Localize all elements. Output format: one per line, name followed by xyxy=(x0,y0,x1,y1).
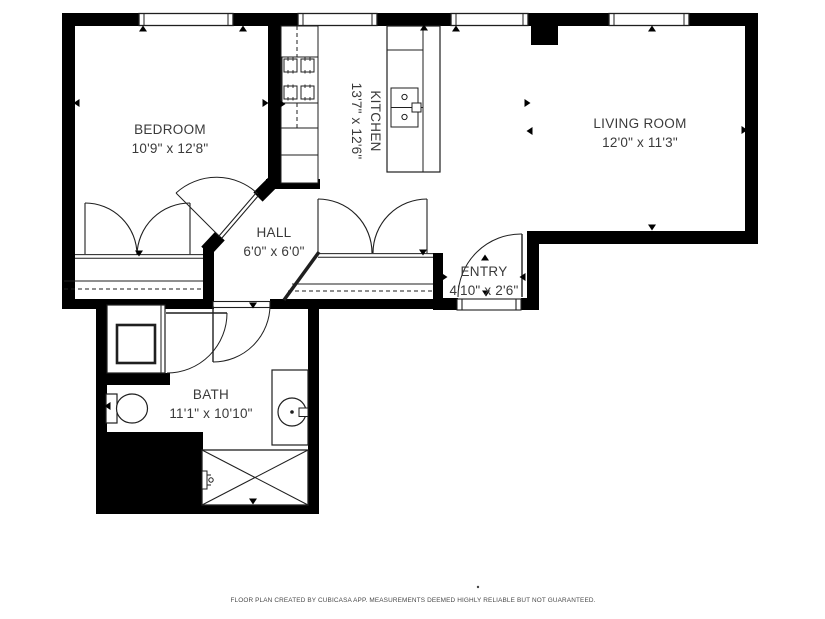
bedroom-closet xyxy=(64,203,203,289)
kitchen-counter xyxy=(281,26,318,183)
room-dimensions: 6'0" x 6'0" xyxy=(243,242,304,261)
room-dimensions: 4'10" x 2'6" xyxy=(450,281,519,300)
entry-threshold xyxy=(457,299,521,310)
hall-diagonal-wall xyxy=(258,180,275,197)
room-name: LIVING ROOM xyxy=(593,114,686,133)
disclaimer-text: FLOOR PLAN CREATED BY CUBICASA APP. MEAS… xyxy=(230,597,595,604)
hall-bottom-wall xyxy=(270,299,443,309)
bedroom-label: BEDROOM 10'9" x 12'8" xyxy=(132,120,209,158)
room-name: BEDROOM xyxy=(132,120,209,139)
left-exterior-wall xyxy=(62,13,75,307)
kitchen-living-pillar xyxy=(531,26,558,45)
kitchen-label: KITCHEN 13'7" x 12'6" xyxy=(347,83,385,160)
entry-label: ENTRY 4'10" x 2'6" xyxy=(450,262,519,300)
room-dimensions: 11'1" x 10'10" xyxy=(169,404,252,423)
bath-left-wall xyxy=(96,302,107,432)
bath-door-threshold xyxy=(213,302,270,308)
room-name: BATH xyxy=(169,385,252,404)
floor-plan: BEDROOM 10'9" x 12'8" KITCHEN 13'7" x 12… xyxy=(0,0,825,619)
right-exterior-wall xyxy=(745,13,758,244)
footer-dot xyxy=(477,586,479,588)
vanity-sink-icon xyxy=(272,370,308,445)
hall-label: HALL 6'0" x 6'0" xyxy=(243,223,304,261)
bath-label: BATH 11'1" x 10'10" xyxy=(169,385,252,423)
kitchen-island xyxy=(387,26,440,172)
floor-plan-graphics xyxy=(0,0,825,619)
shower-door xyxy=(166,313,227,373)
bath-right-wall xyxy=(308,303,319,514)
living-room-label: LIVING ROOM 12'0" x 11'3" xyxy=(593,114,686,152)
kitchen-window xyxy=(298,14,377,26)
room-dimensions: 13'7" x 12'6" xyxy=(347,83,366,160)
hall-closet xyxy=(284,199,433,300)
toilet-icon xyxy=(106,394,148,423)
bathtub-icon xyxy=(202,450,308,505)
closet-double-doors xyxy=(318,199,427,253)
shower-icon xyxy=(107,305,165,373)
kitchen-sink-icon xyxy=(391,88,423,127)
living-room-window xyxy=(609,14,689,26)
room-name: KITCHEN xyxy=(366,83,385,160)
living-room-bottom-wall xyxy=(527,231,758,244)
room-name: ENTRY xyxy=(450,262,519,281)
top-wall-segment xyxy=(528,13,609,26)
top-wall-segment xyxy=(377,13,451,26)
closet-double-doors xyxy=(85,203,190,255)
bedroom-closet-side-wall xyxy=(203,247,214,309)
bedroom-window xyxy=(139,14,233,26)
room-name: HALL xyxy=(243,223,304,242)
living-room-window xyxy=(451,14,528,26)
stove-icon xyxy=(282,57,318,103)
room-dimensions: 12'0" x 11'3" xyxy=(593,133,686,152)
shower-wall xyxy=(96,373,170,385)
entry-bottom-wall xyxy=(521,298,539,310)
top-wall-segment xyxy=(233,13,298,26)
room-dimensions: 10'9" x 12'8" xyxy=(132,139,209,158)
bath-corner-block xyxy=(96,432,203,514)
